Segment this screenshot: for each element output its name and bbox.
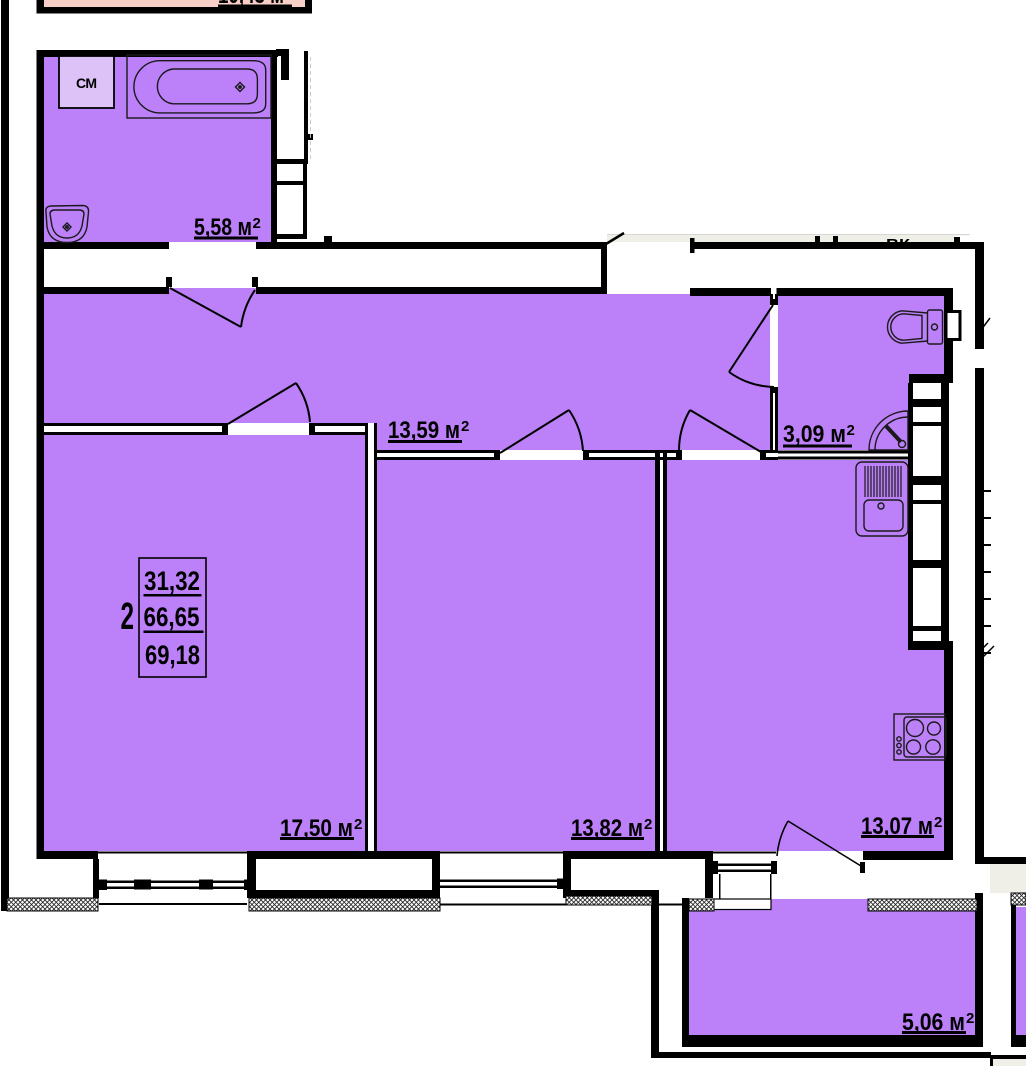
- svg-text:69,18: 69,18: [145, 640, 200, 670]
- svg-text:2: 2: [461, 418, 469, 435]
- svg-text:2: 2: [644, 816, 652, 833]
- svg-text:3,09 м: 3,09 м: [783, 421, 846, 448]
- svg-text:СМ: СМ: [76, 75, 97, 91]
- svg-text:2: 2: [934, 814, 942, 831]
- svg-text:31,32: 31,32: [144, 566, 200, 596]
- svg-text:13,59 м: 13,59 м: [388, 417, 460, 444]
- svg-text:2: 2: [253, 215, 261, 232]
- svg-text:2: 2: [847, 422, 855, 439]
- svg-text:2: 2: [354, 816, 362, 833]
- svg-text:2: 2: [121, 596, 135, 638]
- svg-text:2: 2: [966, 1010, 974, 1027]
- svg-text:66,65: 66,65: [144, 602, 200, 632]
